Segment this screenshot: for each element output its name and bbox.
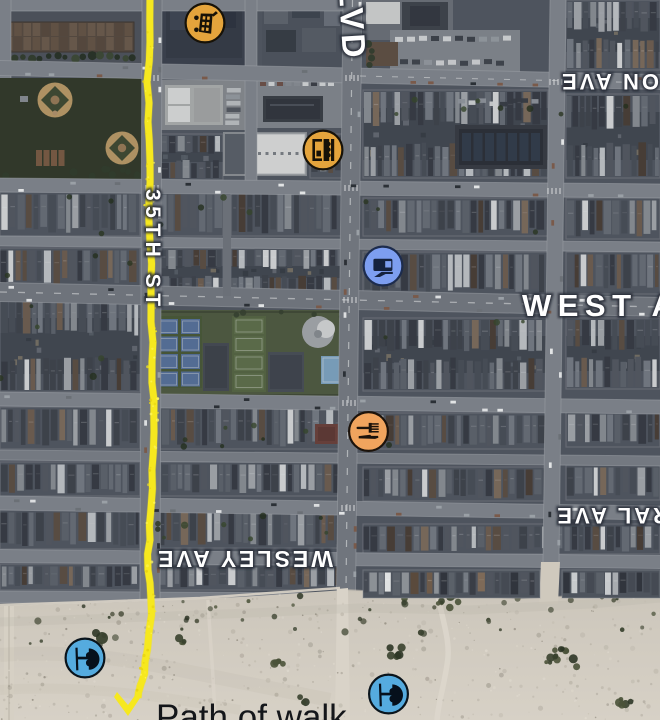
svg-text:35TH ST: 35TH ST (141, 189, 164, 312)
svg-text:Path of walk: Path of walk (156, 698, 347, 720)
svg-text:WESLEY AVE: WESLEY AVE (155, 546, 333, 572)
svg-text:RAL AVE: RAL AVE (554, 503, 660, 528)
svg-text:ON AVE: ON AVE (559, 69, 659, 94)
svg-text:BLVD: BLVD (330, 0, 373, 63)
svg-text:WEST AVE: WEST AVE (522, 288, 660, 323)
